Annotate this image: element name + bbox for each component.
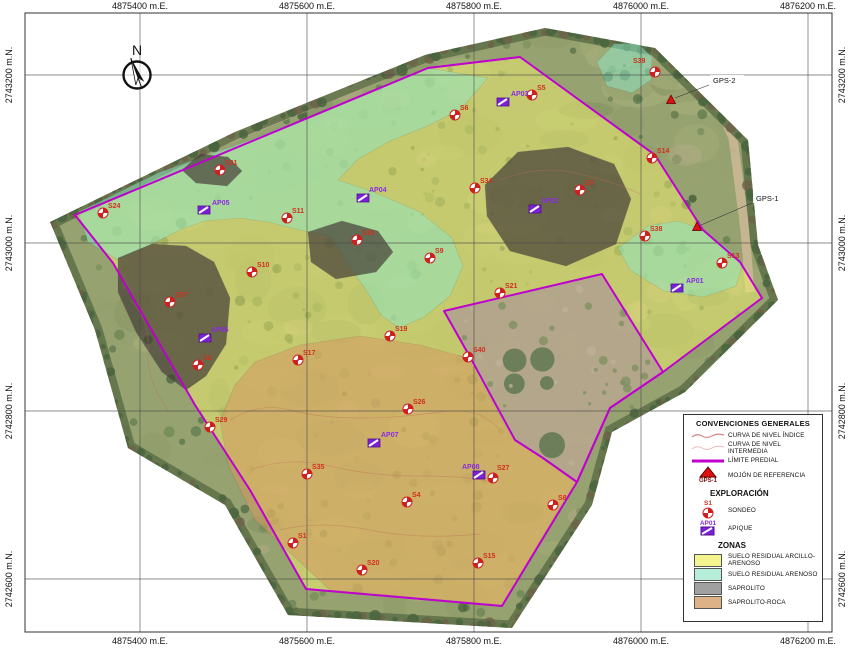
sondeo-label: S4 xyxy=(412,492,421,499)
legend-item-sondeo-icon: S1 xyxy=(688,501,728,520)
sondeo-label: S14 xyxy=(657,148,670,155)
legend-zone-3-icon xyxy=(688,596,728,609)
sondeo-label: S38 xyxy=(650,226,663,233)
legend-zone-1: SUELO RESIDUAL ARENOSO xyxy=(688,568,818,581)
legend-item-contour-intermediate-label: CURVA DE NIVEL INTERMEDIA xyxy=(728,441,818,455)
legend-zones: SUELO RESIDUAL ARCILLO-ARENOSOSUELO RESI… xyxy=(688,553,818,609)
apique-label: AP04 xyxy=(369,187,387,194)
grid-label-left: 2743000 m.N. xyxy=(4,215,14,272)
sondeo-label: S10 xyxy=(257,262,270,269)
sondeo-label: S39 xyxy=(633,58,646,65)
legend-zone-2-label: SAPROLITO xyxy=(728,585,765,592)
legend-gps-tag: GPS-1 xyxy=(699,479,717,484)
grid-label-bottom: 4876200 m.E. xyxy=(780,636,836,646)
sondeo-label: S37 xyxy=(175,292,188,299)
legend-item-contour-index: CURVA DE NIVEL ÍNDICE xyxy=(688,431,818,440)
sondeo-label: S15 xyxy=(483,553,496,560)
sondeo-label: S35 xyxy=(312,464,325,471)
legend-title: CONVENCIONES GENERALES xyxy=(688,419,818,428)
legend-zone-2: SAPROLITO xyxy=(688,582,818,595)
sondeo-label: S20 xyxy=(367,560,380,567)
sondeo-label: S18 xyxy=(362,230,375,237)
legend-box: CONVENCIONES GENERALES CURVA DE NIVEL ÍN… xyxy=(683,414,823,622)
sondeo-label: S40 xyxy=(473,347,486,354)
grid-label-right: 2743200 m.N. xyxy=(837,47,847,104)
legend-item-contour-index-label: CURVA DE NIVEL ÍNDICE xyxy=(728,432,805,439)
map-sheet: 4875400 m.E.4875400 m.E.4875600 m.E.4875… xyxy=(0,0,858,649)
sondeo-label: S21 xyxy=(505,283,518,290)
sondeo-label: S11 xyxy=(292,208,304,215)
apique-label: AP03 xyxy=(511,91,529,98)
legend-item-boundary-icon xyxy=(688,457,728,465)
grid-label-left: 2742600 m.N. xyxy=(4,551,14,608)
sondeo-label: S1 xyxy=(298,533,307,540)
sondeo-label: S5 xyxy=(537,85,546,92)
legend-item-benchmark: GPS-1MOJÓN DE REFERENCIA xyxy=(688,466,818,484)
legend-exploration-title: EXPLORACIÓN xyxy=(710,489,818,498)
sondeo-label: S13 xyxy=(727,253,740,260)
sondeo-label: S8 xyxy=(558,495,567,502)
legend-zones-title: ZONAS xyxy=(718,541,818,550)
legend-item-boundary-label: LÍMITE PREDIAL xyxy=(728,457,778,464)
sondeo-label: S19 xyxy=(395,326,408,333)
sondeo-label: S2 xyxy=(203,355,212,362)
grid-label-top: 4876000 m.E. xyxy=(613,1,669,11)
apique-label: AP07 xyxy=(381,432,399,439)
sondeo-label: S3 xyxy=(585,180,594,187)
grid-label-bottom: 4876000 m.E. xyxy=(613,636,669,646)
grid-label-top: 4875800 m.E. xyxy=(446,1,502,11)
legend-item-benchmark-icon: GPS-1 xyxy=(688,466,728,484)
sondeo-label: S24 xyxy=(108,203,121,210)
north-compass-icon: N xyxy=(124,42,151,91)
sondeo-label: S26 xyxy=(413,399,426,406)
legend-conventions: CURVA DE NIVEL ÍNDICECURVA DE NIVEL INTE… xyxy=(688,431,818,484)
legend-zone-0-label: SUELO RESIDUAL ARCILLO-ARENOSO xyxy=(728,553,818,567)
legend-zone-1-icon xyxy=(688,568,728,581)
apique-label: AP02 xyxy=(541,198,559,205)
apique-label: AP01 xyxy=(686,278,704,285)
legend-zone-3-label: SAPROLITO-ROCA xyxy=(728,599,786,606)
grid-label-top: 4875400 m.E. xyxy=(112,1,168,11)
sondeo-label: S29 xyxy=(215,417,228,424)
grid-label-top: 4876200 m.E. xyxy=(780,1,836,11)
grid-label-right: 2742800 m.N. xyxy=(837,383,847,440)
north-label: N xyxy=(132,42,142,58)
legend-item-boundary: LÍMITE PREDIAL xyxy=(688,456,818,465)
sondeo-label: S6 xyxy=(460,105,469,112)
grid-label-bottom: 4875800 m.E. xyxy=(446,636,502,646)
grid-label-top: 4875600 m.E. xyxy=(279,1,335,11)
legend-zone-1-label: SUELO RESIDUAL ARENOSO xyxy=(728,571,817,578)
legend-zone-0-icon xyxy=(688,554,728,567)
grid-label-bottom: 4875400 m.E. xyxy=(112,636,168,646)
grid-label-left: 2742800 m.N. xyxy=(4,383,14,440)
sondeo-label: S31 xyxy=(225,160,238,167)
grid-label-left: 2743200 m.N. xyxy=(4,47,14,104)
sondeo-label: S27 xyxy=(497,465,510,472)
benchmark-label: GPS-2 xyxy=(713,76,736,85)
legend-item-sondeo: S1SONDEO xyxy=(688,501,818,520)
legend-item-apique: AP01APIQUE xyxy=(688,521,818,536)
legend-zone-3: SAPROLITO-ROCA xyxy=(688,596,818,609)
grid-label-right: 2743000 m.N. xyxy=(837,215,847,272)
legend-item-benchmark-label: MOJÓN DE REFERENCIA xyxy=(728,472,805,479)
sondeo-label: S17 xyxy=(303,350,316,357)
grid-label-bottom: 4875600 m.E. xyxy=(279,636,335,646)
benchmark-label: GPS-1 xyxy=(756,194,779,203)
apique-label: AP05 xyxy=(212,200,230,207)
legend-item-contour-index-icon xyxy=(688,432,728,440)
legend-item-contour-intermediate-icon xyxy=(688,444,728,452)
sondeo-label: S34 xyxy=(480,178,493,185)
grid-label-right: 2742600 m.N. xyxy=(837,551,847,608)
legend-exploration: S1SONDEOAP01APIQUE xyxy=(688,501,818,536)
apique-label: AP08 xyxy=(462,464,480,471)
sondeo-label: S9 xyxy=(435,248,444,255)
legend-item-apique-icon: AP01 xyxy=(688,521,728,536)
legend-zone-0: SUELO RESIDUAL ARCILLO-ARENOSO xyxy=(688,553,818,567)
legend-zone-2-icon xyxy=(688,582,728,595)
legend-item-apique-label: APIQUE xyxy=(728,525,752,532)
apique-label: AP06 xyxy=(211,327,229,334)
legend-item-sondeo-label: SONDEO xyxy=(728,507,756,514)
legend-item-contour-intermediate: CURVA DE NIVEL INTERMEDIA xyxy=(688,441,818,455)
